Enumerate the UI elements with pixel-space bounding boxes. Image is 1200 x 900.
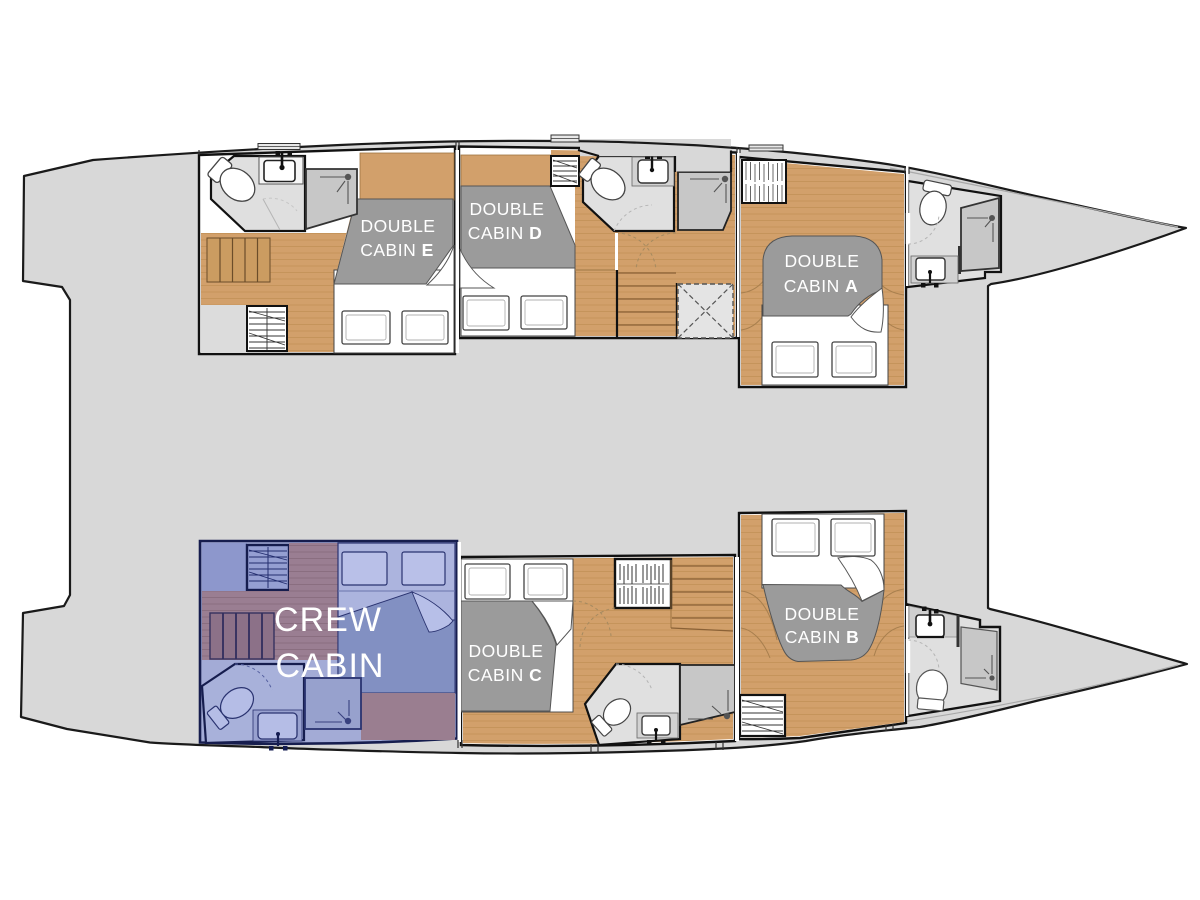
svg-text:CABIN C: CABIN C: [468, 665, 543, 685]
svg-text:CREW: CREW: [274, 601, 382, 639]
svg-text:CABIN E: CABIN E: [360, 240, 434, 260]
svg-text:CABIN D: CABIN D: [468, 223, 543, 243]
svg-text:CABIN: CABIN: [276, 647, 385, 685]
svg-text:DOUBLE: DOUBLE: [361, 216, 436, 236]
svg-text:DOUBLE: DOUBLE: [469, 641, 544, 661]
svg-text:CABIN A: CABIN A: [784, 276, 859, 296]
svg-text:DOUBLE: DOUBLE: [785, 251, 860, 271]
svg-text:CABIN B: CABIN B: [785, 627, 860, 647]
svg-text:DOUBLE: DOUBLE: [470, 199, 545, 219]
svg-text:DOUBLE: DOUBLE: [785, 604, 860, 624]
